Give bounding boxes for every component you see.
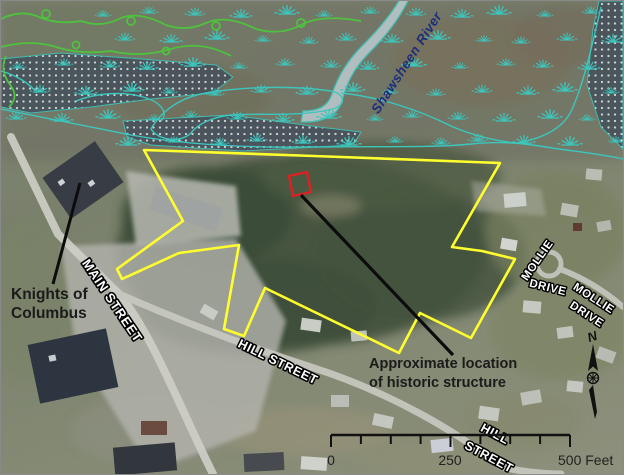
- label-knights-line2: Columbus: [11, 305, 87, 322]
- label-approx-line2: of historic structure: [369, 375, 506, 391]
- scale-label-250: 250: [438, 452, 462, 468]
- label-approx-line1: Approximate location: [369, 356, 517, 372]
- aerial-map-canvas: Shawsheen River MAIN STREET HILL STREET …: [1, 1, 623, 474]
- north-arrow-hub-center: [591, 376, 594, 379]
- scale-label-0: 0: [327, 452, 335, 468]
- label-knights-line1: Knights of: [11, 286, 88, 303]
- north-arrow-tail: [589, 385, 597, 419]
- scale-label-500-feet: 500 Feet: [558, 452, 613, 468]
- map-figure: Shawsheen River MAIN STREET HILL STREET …: [0, 0, 624, 475]
